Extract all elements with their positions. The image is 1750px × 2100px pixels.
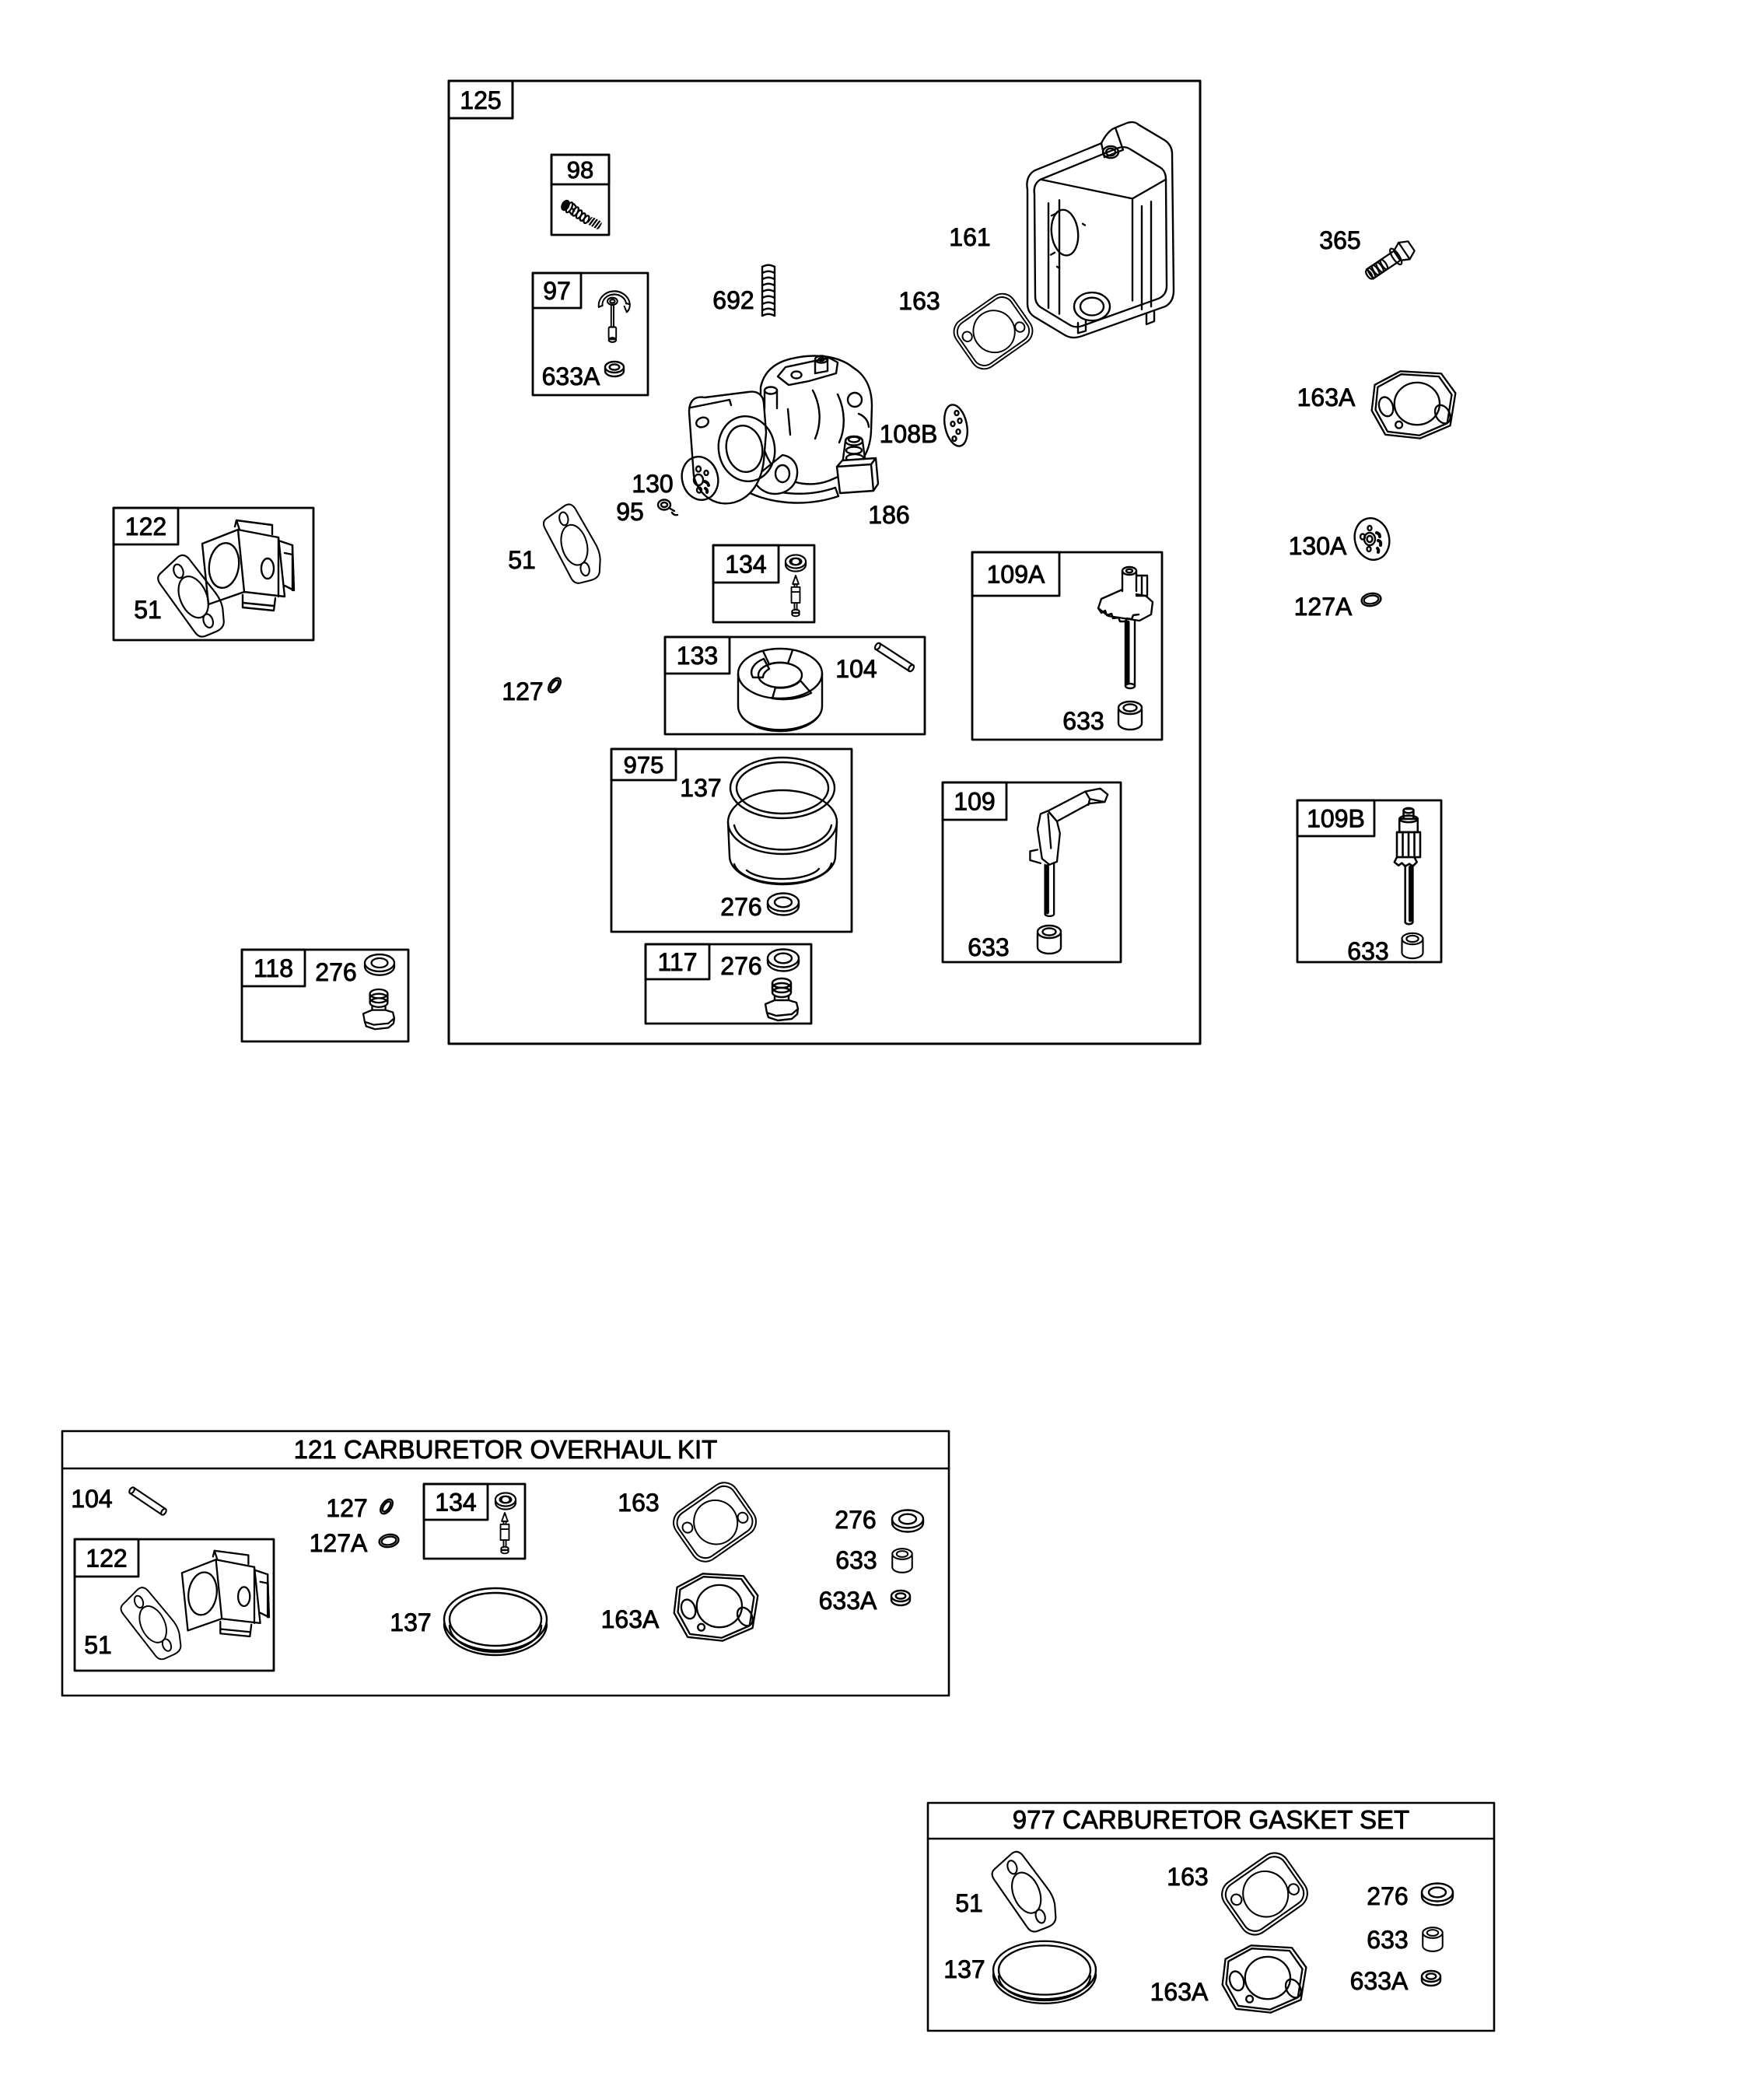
svg-text:365: 365	[1319, 226, 1360, 254]
svg-text:633A: 633A	[1350, 1967, 1409, 1995]
svg-text:130: 130	[632, 470, 673, 498]
svg-text:109B: 109B	[1307, 805, 1365, 833]
svg-text:127: 127	[502, 677, 543, 705]
svg-text:104: 104	[835, 655, 877, 683]
svg-text:633: 633	[1367, 1926, 1408, 1954]
svg-text:633: 633	[1062, 707, 1104, 735]
svg-text:95: 95	[616, 498, 644, 526]
svg-text:633A: 633A	[819, 1587, 877, 1615]
svg-text:137: 137	[390, 1608, 431, 1636]
svg-text:104: 104	[71, 1485, 112, 1513]
svg-text:276: 276	[1367, 1882, 1408, 1910]
svg-text:163A: 163A	[1150, 1978, 1209, 2006]
svg-text:276: 276	[720, 893, 761, 921]
svg-text:117: 117	[657, 948, 697, 976]
svg-text:122: 122	[86, 1545, 127, 1573]
svg-text:121 CARBURETOR OVERHAUL KIT: 121 CARBURETOR OVERHAUL KIT	[294, 1435, 718, 1464]
svg-text:977 CARBURETOR GASKET SET: 977 CARBURETOR GASKET SET	[1013, 1805, 1409, 1834]
svg-text:692: 692	[712, 286, 754, 314]
svg-text:133: 133	[677, 642, 718, 670]
svg-text:633: 633	[1347, 937, 1388, 965]
svg-text:633A: 633A	[542, 362, 600, 390]
svg-text:127A: 127A	[1294, 593, 1353, 621]
svg-text:122: 122	[125, 513, 166, 541]
svg-text:633: 633	[968, 933, 1009, 961]
svg-text:163A: 163A	[1297, 383, 1356, 411]
svg-text:51: 51	[84, 1631, 112, 1659]
svg-text:127: 127	[326, 1494, 367, 1522]
svg-text:163: 163	[898, 287, 940, 315]
svg-text:134: 134	[435, 1489, 476, 1517]
svg-text:633: 633	[835, 1546, 877, 1574]
svg-text:137: 137	[680, 774, 721, 802]
svg-text:276: 276	[720, 952, 761, 980]
svg-text:137: 137	[943, 1955, 985, 1983]
svg-text:163A: 163A	[601, 1605, 660, 1633]
svg-text:109A: 109A	[987, 561, 1045, 589]
svg-text:163: 163	[618, 1489, 659, 1517]
svg-text:51: 51	[134, 596, 162, 624]
svg-text:161: 161	[949, 223, 990, 251]
svg-text:130A: 130A	[1289, 532, 1347, 560]
svg-text:51: 51	[508, 546, 536, 574]
svg-text:97: 97	[543, 277, 571, 305]
svg-text:975: 975	[624, 751, 664, 779]
svg-text:108B: 108B	[880, 420, 938, 448]
svg-text:186: 186	[868, 501, 909, 529]
svg-text:125: 125	[460, 86, 501, 114]
svg-text:51: 51	[955, 1889, 983, 1917]
svg-text:118: 118	[254, 954, 293, 982]
svg-text:163: 163	[1167, 1863, 1208, 1891]
svg-text:134: 134	[725, 551, 766, 579]
svg-text:109: 109	[954, 788, 995, 816]
svg-text:127A: 127A	[310, 1529, 368, 1557]
svg-text:276: 276	[315, 958, 356, 986]
svg-text:276: 276	[835, 1506, 876, 1534]
svg-text:98: 98	[567, 156, 593, 184]
